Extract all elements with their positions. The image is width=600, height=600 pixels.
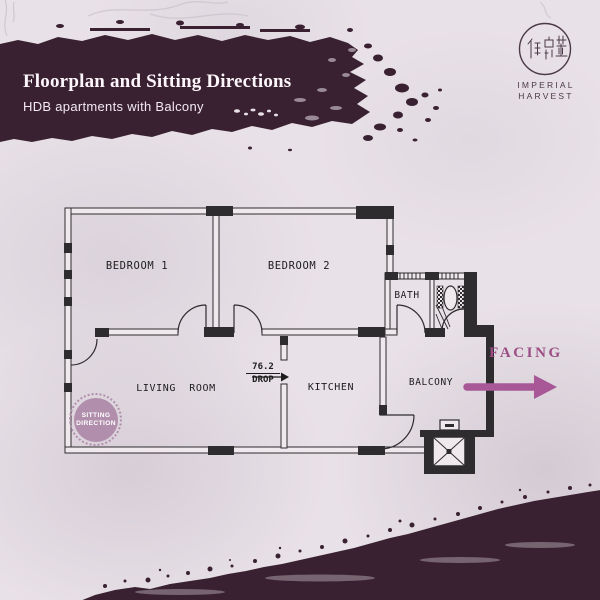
bottom-brush-stroke bbox=[0, 470, 600, 600]
room-label-bedroom2: BEDROOM 2 bbox=[239, 260, 359, 272]
room-label-kitchen: KITCHEN bbox=[291, 382, 371, 393]
drop-label: DROP bbox=[246, 374, 280, 385]
page-title: Floorplan and Sitting Directions bbox=[23, 71, 383, 93]
sitting-direction-badge: SITTING DIRECTION bbox=[69, 393, 124, 448]
room-label-bedroom1: BEDROOM 1 bbox=[77, 260, 197, 272]
brand-name-line1: IMPERIAL bbox=[517, 80, 574, 90]
facing-label: FACING bbox=[487, 345, 565, 362]
badge-line2: DIRECTION bbox=[76, 420, 116, 429]
drop-annotation: 76.2 DROP bbox=[246, 362, 280, 385]
poster-canvas: BEDROOM 1 BEDROOM 2 BATH LIVING ROOM KIT… bbox=[0, 0, 600, 600]
brand-name-line2: HARVEST bbox=[518, 91, 573, 101]
facing-arrow bbox=[467, 375, 557, 399]
badge-circle: SITTING DIRECTION bbox=[74, 398, 118, 442]
brand-name: IMPERIAL HARVEST bbox=[513, 80, 579, 101]
imperial-harvest-logo bbox=[515, 20, 575, 78]
logo-seal-characters bbox=[528, 36, 567, 59]
room-label-bath: BATH bbox=[377, 290, 437, 301]
room-label-living-room: LIVING ROOM bbox=[106, 383, 246, 394]
badge-line1: SITTING bbox=[82, 412, 111, 421]
drop-value: 76.2 bbox=[246, 362, 280, 374]
room-label-balcony: BALCONY bbox=[391, 377, 471, 388]
page-subtitle: HDB apartments with Balcony bbox=[23, 99, 323, 114]
